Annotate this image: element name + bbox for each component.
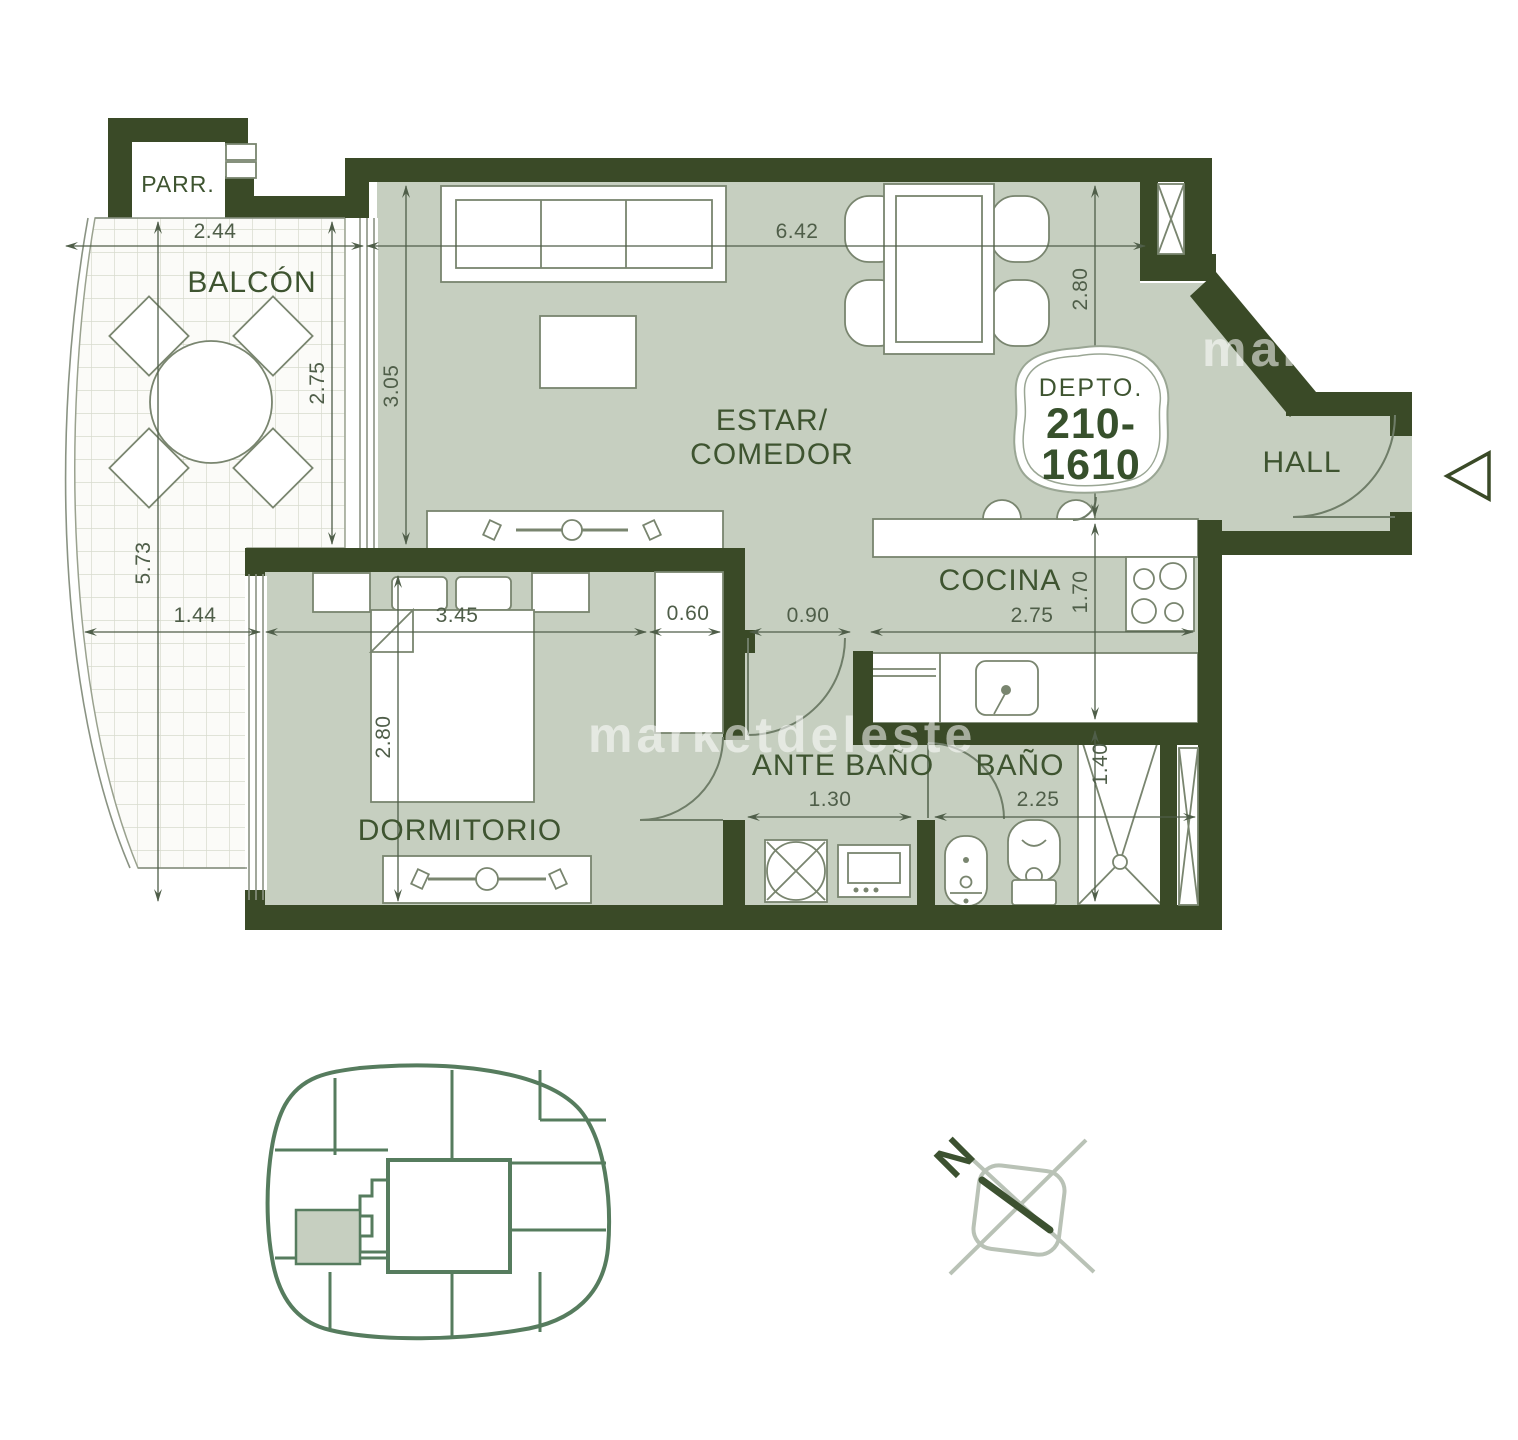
dimension-label: 0.90: [787, 604, 830, 627]
dresser: [383, 856, 591, 903]
label-cocina: COCINA: [939, 564, 1062, 597]
nightstand: [313, 573, 370, 612]
dimension-label: 2.44: [194, 220, 237, 243]
label-balcon: BALCÓN: [187, 266, 316, 299]
bidet: [945, 836, 987, 906]
entrance-arrow: [1447, 453, 1489, 499]
unit-badge: DEPTO. 210- 1610: [1014, 346, 1168, 493]
dimension-label: 2.25: [1017, 788, 1060, 811]
badge-unit-number-2: 1610: [1041, 441, 1141, 489]
dimension-label: 1.40: [1089, 743, 1112, 786]
stove: [1126, 557, 1194, 631]
structural-column: [1179, 748, 1198, 905]
nightstand: [532, 573, 589, 612]
structural-column: [1158, 184, 1184, 254]
watermark-text: marketdeleste: [588, 707, 976, 763]
dimension-label: 5.73: [132, 542, 155, 585]
badge-depto-title: DEPTO.: [1039, 374, 1144, 402]
dimension-label: 2.75: [306, 362, 329, 405]
floor-plan-drawing: 2.44 6.42 2.75 3.05 5.73 2.80 1.70 1.44 …: [0, 0, 1518, 1440]
label-estar-line2: COMEDOR: [690, 438, 854, 471]
breakfast-bar: [873, 519, 1198, 557]
living-balcony-window: [348, 218, 378, 548]
label-hall: HALL: [1262, 446, 1341, 479]
building-footprint-diagram: [268, 1065, 609, 1338]
label-dormitorio: DORMITORIO: [358, 814, 562, 847]
dimension-label: 2.80: [1069, 268, 1092, 311]
dimension-label: 2.75: [1011, 604, 1054, 627]
oven: [838, 845, 910, 897]
dimension-label: 1.70: [1069, 571, 1092, 614]
label-parrilla: PARR.: [141, 171, 215, 197]
dimension-label: 2.80: [372, 716, 395, 759]
highlighted-unit: [296, 1210, 360, 1264]
sofa: [441, 186, 726, 282]
dimension-label: 3.45: [436, 604, 479, 627]
coffee-table: [540, 316, 636, 388]
north-letter: N: [924, 1127, 984, 1187]
dimension-label: 3.05: [380, 365, 403, 408]
dimension-label: 0.60: [667, 602, 710, 625]
toilet: [1008, 820, 1060, 905]
kitchen-sink: [976, 661, 1038, 715]
tv-unit-living: [427, 511, 723, 550]
bedroom-window: [245, 574, 267, 900]
watermark-text-partial: marketdeleste: [1202, 321, 1518, 377]
dimension-label: 1.44: [174, 604, 217, 627]
washing-machine: [765, 840, 827, 902]
north-compass: N: [924, 1127, 1094, 1274]
floor-plan-page: 2.44 6.42 2.75 3.05 5.73 2.80 1.70 1.44 …: [0, 0, 1518, 1440]
label-bano: BAÑO: [975, 748, 1064, 782]
dimension-label: 6.42: [776, 220, 819, 243]
label-estar-line1: ESTAR/: [716, 404, 828, 437]
dimension-label: 1.30: [809, 788, 852, 811]
